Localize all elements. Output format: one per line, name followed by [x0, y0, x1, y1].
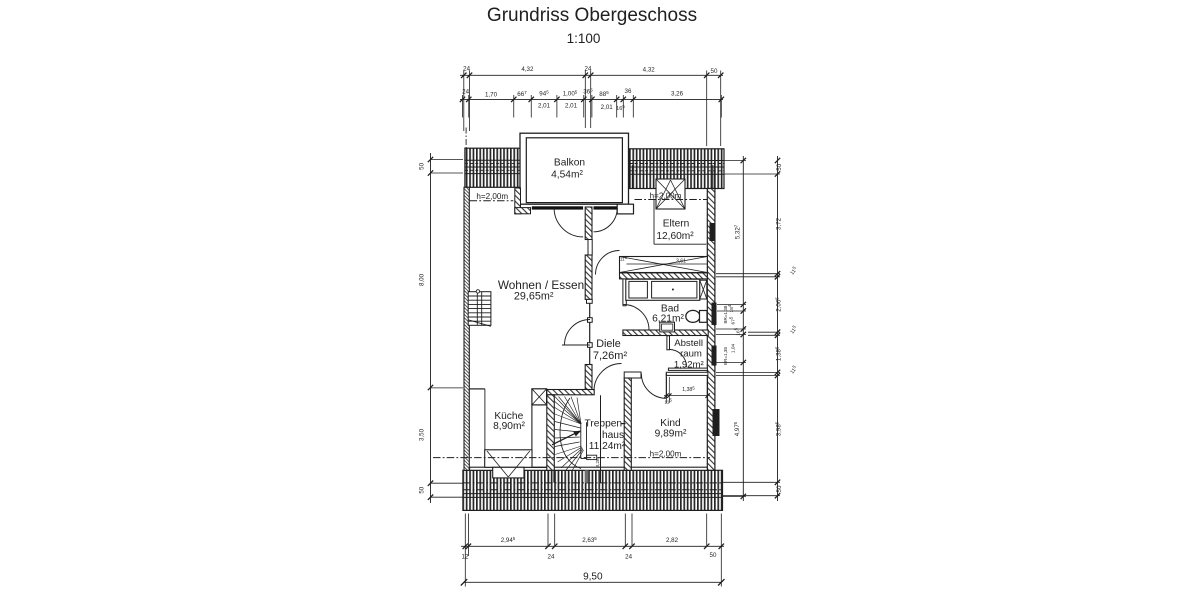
svg-text:24: 24: [548, 554, 555, 561]
svg-text:Abstell: Abstell: [674, 338, 703, 349]
svg-text:3,61: 3,61: [676, 258, 686, 264]
svg-text:7,26m²: 7,26m²: [593, 350, 628, 362]
svg-text:24: 24: [585, 66, 592, 73]
svg-text:Grundriss Obergeschoss: Grundriss Obergeschoss: [487, 5, 697, 26]
svg-text:h=2,00m: h=2,00m: [476, 192, 508, 201]
svg-text:50: 50: [419, 486, 426, 493]
svg-text:11,24m²: 11,24m²: [589, 441, 626, 452]
svg-text:29,65m²: 29,65m²: [514, 290, 554, 302]
svg-text:raum: raum: [680, 349, 702, 360]
svg-text:50: 50: [776, 485, 783, 492]
svg-text:3,26: 3,26: [595, 458, 601, 468]
svg-text:3,26: 3,26: [671, 90, 684, 97]
svg-text:9,50: 9,50: [583, 572, 603, 583]
svg-text:Balkon: Balkon: [554, 158, 585, 169]
svg-text:3,72: 3,72: [775, 217, 782, 230]
svg-text:50: 50: [711, 68, 718, 75]
svg-text:3,50: 3,50: [419, 428, 426, 441]
svg-text:haus: haus: [602, 430, 624, 441]
svg-text:h=2,00m: h=2,00m: [650, 449, 682, 458]
svg-text:50: 50: [776, 163, 783, 170]
svg-text:2,01: 2,01: [538, 103, 551, 110]
svg-text:2,01: 2,01: [601, 104, 614, 111]
svg-text:Diele: Diele: [596, 338, 621, 350]
svg-text:1,70: 1,70: [485, 92, 498, 99]
svg-text:BR=1,38: BR=1,38: [723, 305, 728, 323]
svg-text:24: 24: [463, 66, 470, 73]
svg-text:1:100: 1:100: [567, 31, 601, 46]
svg-text:4,54m²: 4,54m²: [551, 170, 583, 181]
svg-text:h=2,00m: h=2,00m: [650, 192, 682, 201]
svg-text:8,00: 8,00: [419, 273, 426, 286]
svg-text:4,32: 4,32: [521, 66, 534, 73]
svg-text:12,60m²: 12,60m²: [656, 231, 694, 242]
svg-text:Kind: Kind: [660, 418, 681, 429]
svg-text:6,21m²: 6,21m²: [652, 314, 684, 325]
svg-text:50: 50: [419, 162, 426, 169]
svg-text:2,82: 2,82: [666, 537, 679, 544]
svg-text:1,92m²: 1,92m²: [674, 360, 705, 371]
svg-text:1,04: 1,04: [731, 344, 737, 354]
svg-text:4,32: 4,32: [643, 67, 656, 74]
svg-text:36: 36: [625, 88, 632, 95]
svg-text:50: 50: [710, 552, 717, 559]
svg-text:8,90m²: 8,90m²: [493, 421, 525, 432]
svg-text:Eltern: Eltern: [663, 219, 690, 230]
svg-text:Treppen-: Treppen-: [585, 419, 626, 430]
svg-text:24: 24: [462, 89, 469, 96]
svg-text:BR=1,38: BR=1,38: [723, 347, 728, 365]
svg-text:2,01: 2,01: [565, 103, 578, 110]
svg-text:24: 24: [625, 554, 632, 561]
svg-text:9,89m²: 9,89m²: [655, 429, 687, 440]
